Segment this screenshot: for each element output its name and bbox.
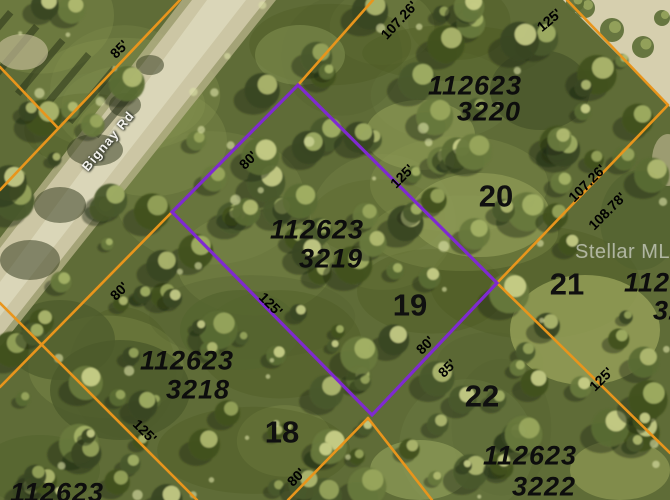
parcel-id-label: 112623: [140, 348, 234, 375]
parcel-id-label: 32: [653, 298, 670, 325]
dimension-label: 80': [284, 465, 307, 488]
lot-number-label: 20: [479, 181, 513, 212]
parcel-id-label: 3219: [299, 246, 363, 273]
stellar-mls-watermark: Stellar MLS: [575, 241, 670, 264]
dimension-label: 80': [236, 148, 259, 171]
dimension-label: 85': [435, 356, 458, 379]
parcel-id-label: 112623: [270, 217, 364, 244]
dimension-label: 107.26': [378, 0, 420, 42]
lot-number-label: 19: [393, 290, 427, 321]
parcel-id-label: 3218: [166, 377, 230, 404]
dimension-label: 125': [131, 417, 160, 446]
dimension-label: 108.78': [586, 190, 629, 233]
lot-number-label: 18: [265, 417, 299, 448]
parcel-id-label: 112623: [428, 73, 522, 100]
parcel-id-label: 3220: [457, 99, 521, 126]
map-labels-layer: 1126233220112623321911262332181126233222…: [0, 0, 670, 500]
parcel-id-label: 3222: [512, 474, 576, 500]
parcel-id-label: 112623: [483, 443, 577, 470]
dimension-label: 125': [388, 162, 417, 191]
dimension-label: 80': [107, 279, 130, 302]
dimension-label: 125': [587, 365, 616, 394]
lot-number-label: 22: [465, 381, 499, 412]
dimension-label: 80': [413, 333, 436, 356]
dimension-label: 85': [107, 37, 130, 60]
dimension-label: 125': [534, 6, 563, 34]
aerial-parcel-map[interactable]: 1126233220112623321911262332181126233222…: [0, 0, 670, 500]
lot-number-label: 21: [550, 269, 584, 300]
dimension-label: 125': [257, 290, 286, 319]
dimension-label: 107.26': [566, 162, 609, 205]
parcel-id-label: 112623: [10, 480, 104, 500]
parcel-id-label: 1126: [624, 270, 670, 297]
